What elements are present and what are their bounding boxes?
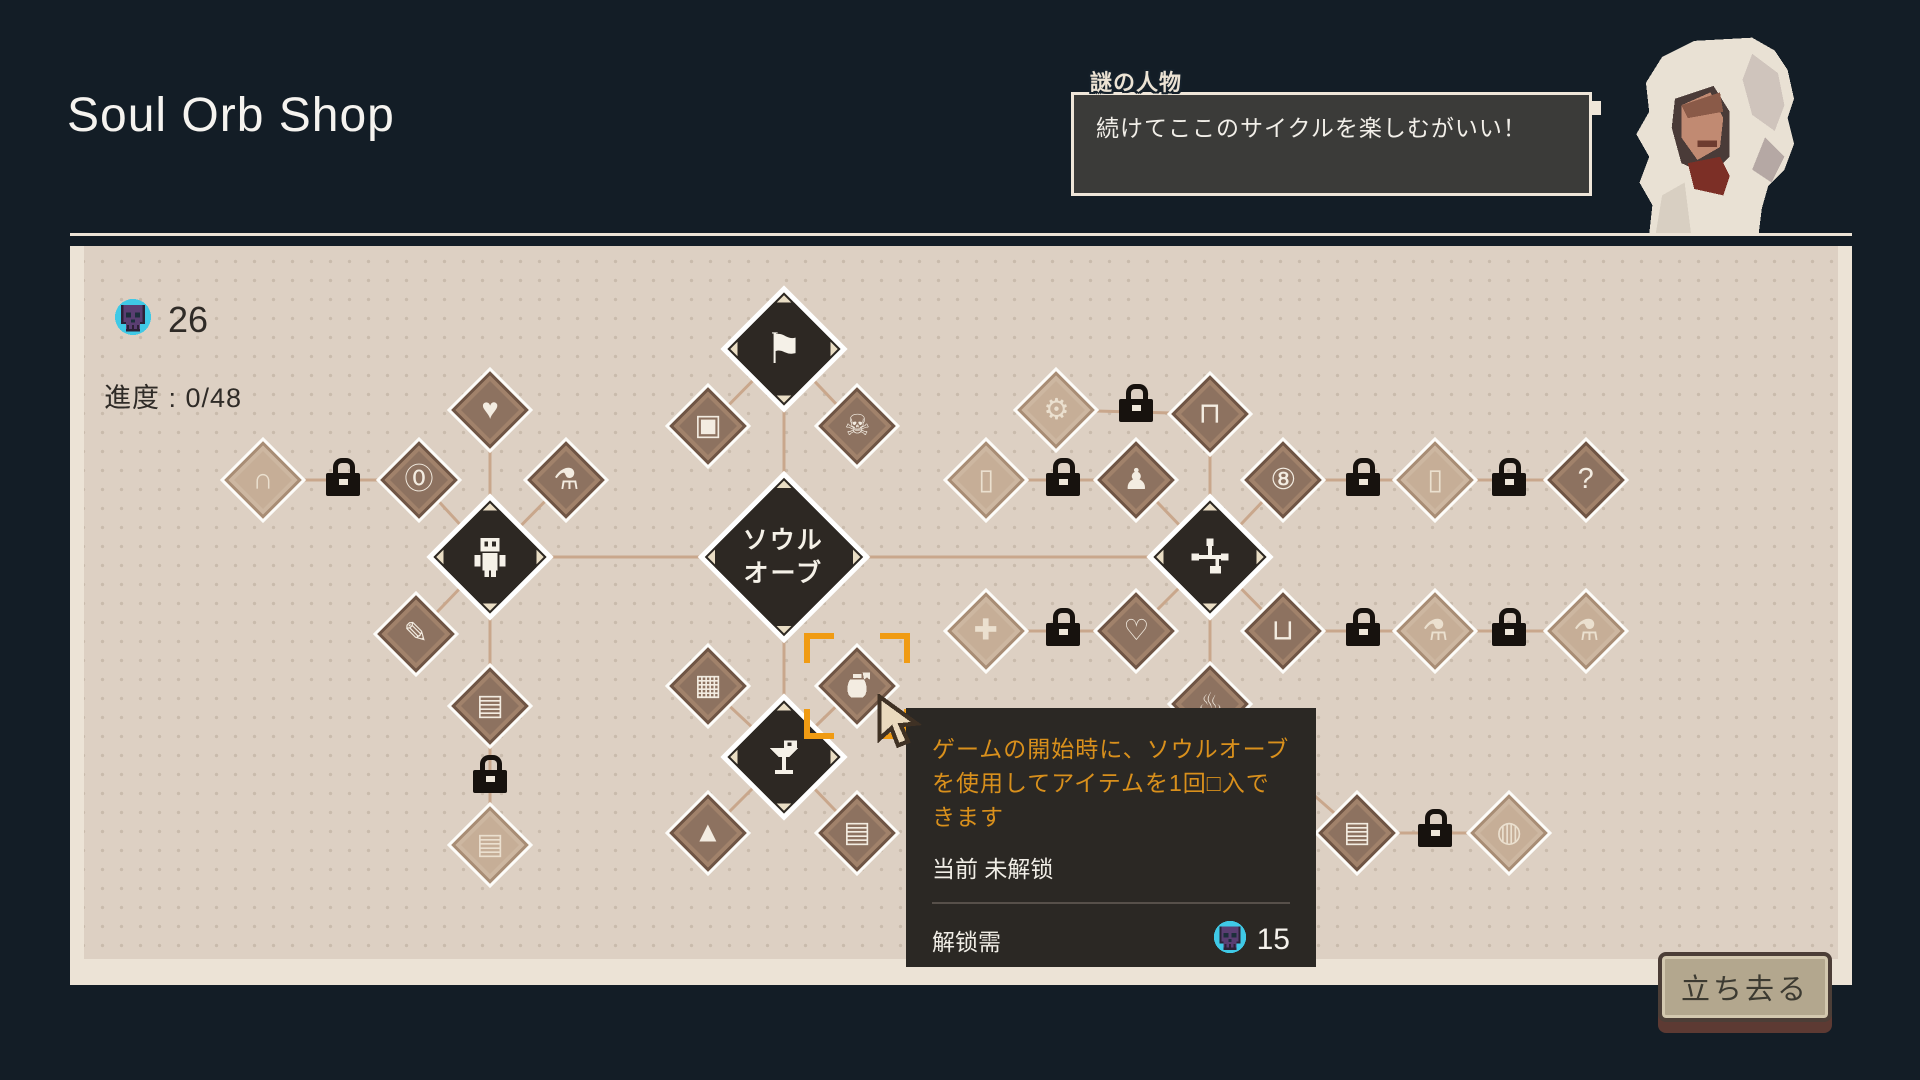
banner-flask-icon: ⊔ (1272, 616, 1295, 645)
potion-icon: ⚗ (553, 466, 579, 495)
soul-skull-icon (1213, 920, 1247, 959)
lock-icon (1492, 608, 1526, 648)
tombstone-icon: ∩ (253, 466, 274, 495)
canister-lock-icon: ▤ (476, 692, 503, 721)
tooltip-unlock-label: 解锁需 (932, 923, 1001, 957)
mysterious-person-portrait (1622, 28, 1818, 234)
lock-icon (1346, 608, 1380, 648)
gear-icon: ⚙ (1043, 396, 1069, 425)
hooded-figure-icon (1622, 28, 1818, 234)
heart-box-icon: ♡ (1123, 617, 1149, 646)
tooltip-description: ゲームの開始時に、ソウルオーブを使用してアイテムを1回□入できます (932, 732, 1290, 834)
dialogue-box: 謎の人物 続けてここのサイクルを楽しむがいい！ (1071, 92, 1592, 196)
dialogue-speaker-name: 謎の人物 (1090, 65, 1182, 97)
banner-eight-icon: ⑧ (1270, 466, 1296, 495)
progress-label: 進度 : 0/48 (104, 376, 242, 415)
currency-amount: 26 (168, 299, 208, 341)
tooltip-status: 当前 未解锁 (932, 850, 1290, 884)
heart-icon: ♥ (481, 396, 498, 425)
soul-skull-icon (114, 298, 152, 341)
item-pedestal-icon (762, 735, 806, 779)
lock-icon (1046, 608, 1080, 648)
skull-coin-icon: ☠ (844, 412, 870, 441)
canister-plus-icon: ▤ (843, 819, 870, 848)
spray-sparkle-icon: ⚗ (1422, 617, 1448, 646)
flask-plus-icon: ⚗ (1573, 617, 1599, 646)
chest-icon: ▦ (694, 672, 721, 701)
soul-skull-icon (114, 298, 152, 336)
card-plus-icon: ▯ (978, 466, 994, 495)
canister-icon: ▤ (476, 831, 503, 860)
node-tooltip: ゲームの開始時に、ソウルオーブを使用してアイテムを1回□入できます 当前 未解锁… (906, 708, 1316, 967)
lock-icon (473, 755, 507, 795)
mountain-icon: ▲ (694, 818, 723, 847)
page-title: Soul Orb Shop (67, 88, 395, 143)
lock-icon (1492, 458, 1526, 498)
coin-zero-icon: ⓪ (404, 465, 433, 494)
torn-flag-icon: ⚑ (765, 328, 803, 370)
card-upgrade-icon: ▯ (1427, 466, 1443, 495)
dialogue-text: 続けてここのサイクルを楽しむがいい！ (1096, 109, 1569, 143)
mouse-cursor-icon (871, 694, 925, 752)
currency-counter: 26 (114, 298, 208, 341)
money-pouch-icon (840, 669, 874, 703)
lock-icon (326, 458, 360, 498)
soul-orb-label: ソウルオーブ (743, 524, 824, 589)
skill-network-icon (1188, 535, 1232, 579)
soul-skull-icon (1213, 920, 1247, 954)
dialogue-notch (1592, 101, 1601, 115)
crate-icon: ▣ (694, 412, 721, 441)
lock-icon (1046, 458, 1080, 498)
bowl-icon: ◍ (1496, 819, 1521, 848)
canister-sparkle-icon: ▤ (1343, 819, 1370, 848)
ghost-doll-icon: ♟ (1123, 466, 1149, 495)
tooltip-unlock-cost: 15 (1257, 923, 1290, 957)
lock-icon (1119, 384, 1153, 424)
tooltip-divider (932, 902, 1290, 904)
lock-icon (1418, 809, 1452, 849)
robot-icon (467, 534, 513, 580)
leave-button[interactable]: 立ち去る (1658, 952, 1832, 1022)
pencil-plus-icon: ✎ (404, 620, 428, 649)
cross-plus-icon: ✚ (974, 617, 998, 646)
card-question-icon: ? (1578, 465, 1594, 494)
jar-icon: ⊓ (1199, 399, 1222, 428)
lock-icon (1346, 458, 1380, 498)
